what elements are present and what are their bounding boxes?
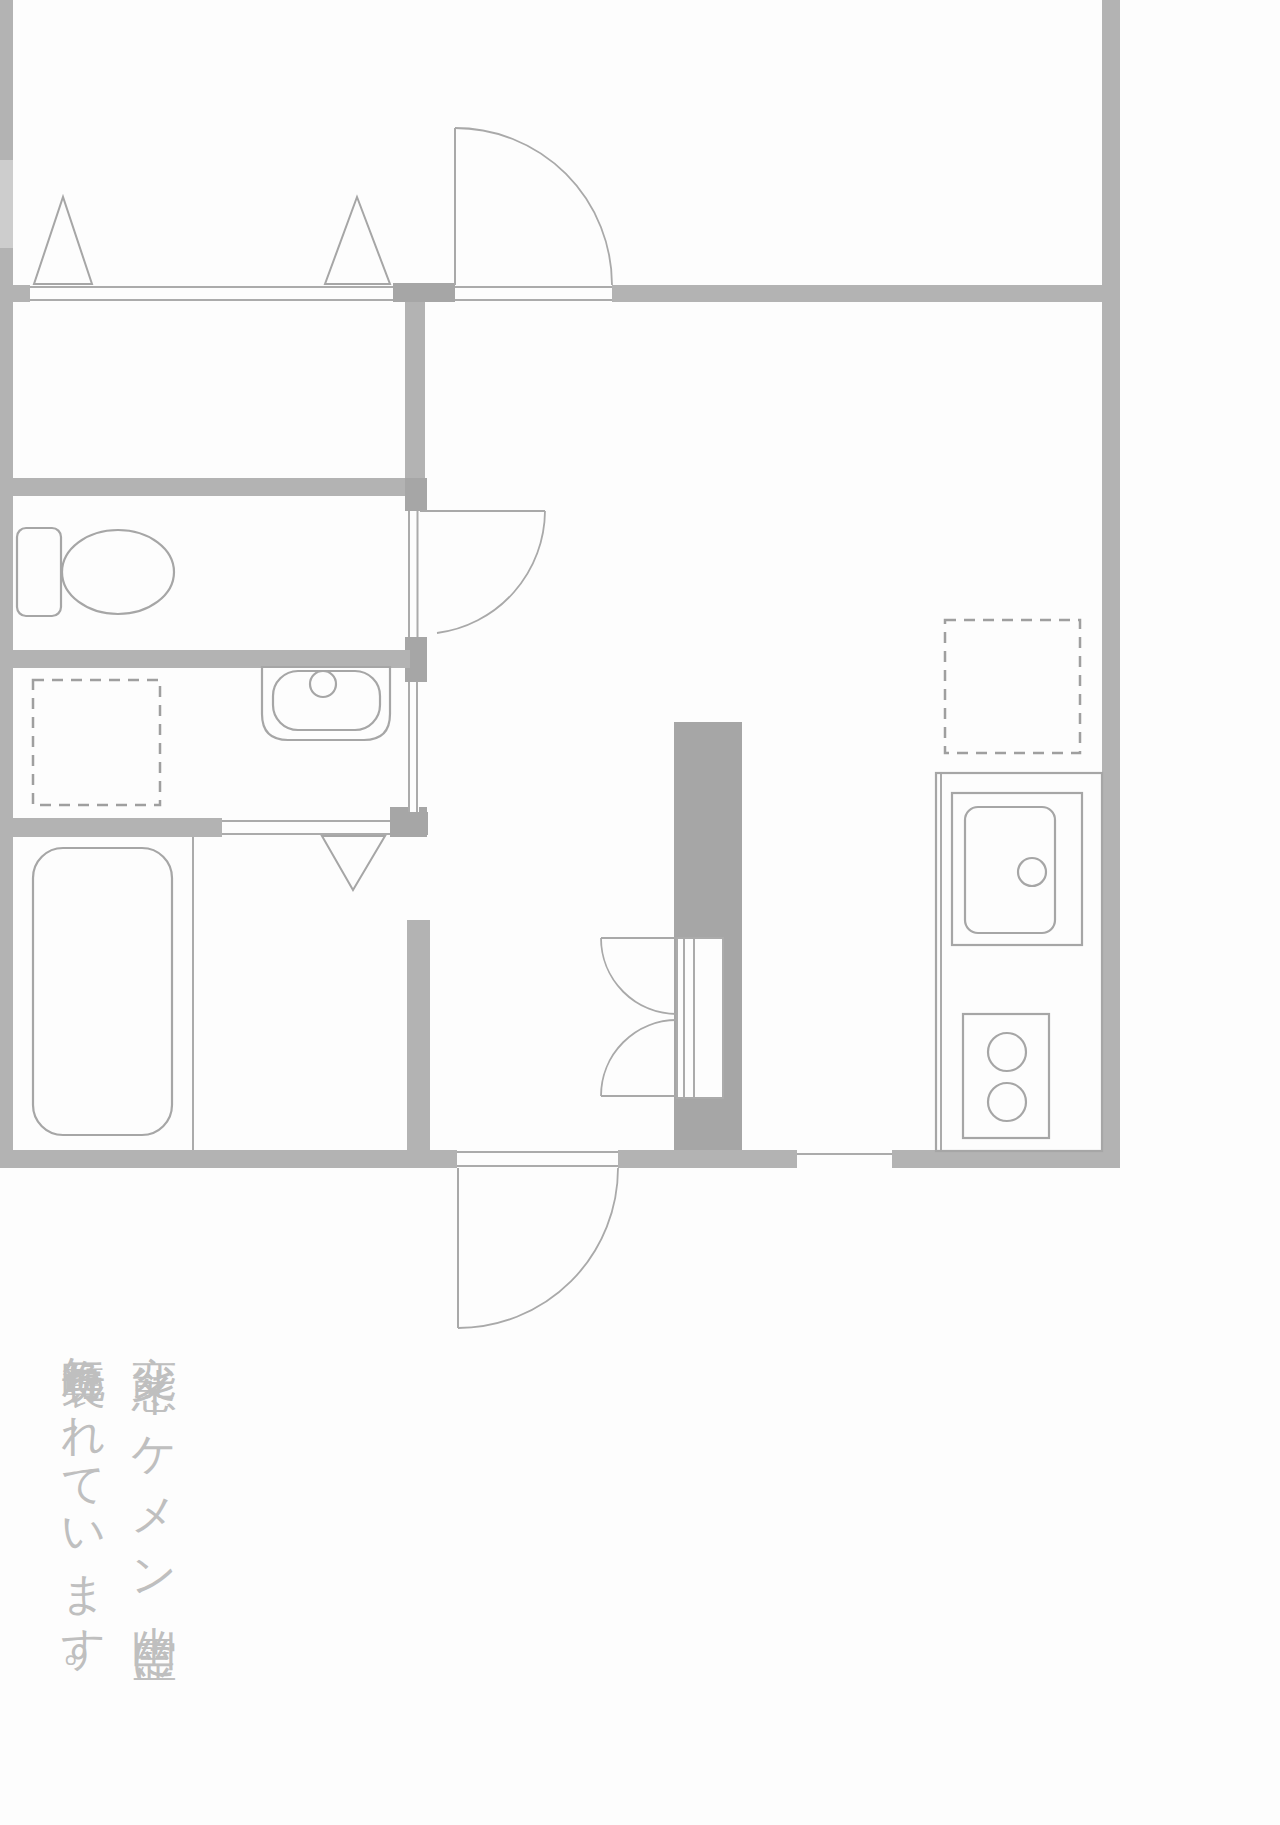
left-wall-upper bbox=[0, 0, 13, 160]
entrance-door-swing-arc bbox=[458, 1168, 618, 1328]
right-wall bbox=[1102, 0, 1120, 1168]
bathtub bbox=[33, 848, 172, 1135]
bath-door-marker bbox=[322, 836, 385, 890]
stove-burner-1 bbox=[988, 1033, 1026, 1071]
refrigerator-space bbox=[945, 620, 1080, 753]
washer-space bbox=[33, 680, 160, 805]
washbasin-faucet bbox=[310, 671, 336, 697]
top-wall-right bbox=[612, 285, 1102, 302]
bath-top-wall bbox=[0, 818, 222, 837]
bottom-wall-left bbox=[0, 1150, 457, 1168]
left-wall-lower bbox=[0, 248, 13, 1168]
toilet-top-wall bbox=[0, 478, 427, 496]
top-window-band bbox=[30, 286, 393, 301]
floor-plan-page: 変態イケメン幽霊に 毎晩襲われています。 bbox=[0, 0, 1280, 1825]
bottom-wall-mid bbox=[618, 1150, 797, 1168]
kitchen-pass-opening bbox=[797, 1150, 892, 1168]
hall-left-wall bbox=[407, 920, 430, 1150]
kitchen-faucet bbox=[1018, 858, 1046, 886]
toilet-bowl bbox=[62, 530, 174, 614]
toilet-bottom-wall bbox=[0, 650, 410, 668]
top-wall-left-stub bbox=[0, 285, 30, 302]
bedroom-door-swing-arc bbox=[455, 128, 612, 285]
toilet-door-swing-arc bbox=[437, 511, 545, 633]
left-wall-window bbox=[0, 160, 13, 248]
window-marker-left bbox=[34, 197, 92, 284]
window-marker-right bbox=[325, 197, 390, 284]
toilet-door-top-block bbox=[405, 478, 427, 511]
bath-folding-door-band bbox=[222, 820, 390, 835]
kitchen-sink-surround bbox=[952, 793, 1082, 945]
kitchen-counter bbox=[936, 773, 1102, 1151]
top-door-sill bbox=[455, 286, 612, 301]
closet-right-wall bbox=[405, 302, 425, 479]
floor-plan-drawing bbox=[0, 0, 1280, 1825]
bottom-wall-right bbox=[892, 1150, 1120, 1168]
stove-burner-2 bbox=[988, 1083, 1026, 1121]
toilet-tank bbox=[17, 528, 61, 616]
caption-line-2: 毎晩襲われています。 bbox=[61, 1322, 105, 1697]
double-door-top-leaf-swing-arc bbox=[601, 938, 677, 1014]
top-wall-mid-block bbox=[393, 283, 455, 302]
caption-line-1: 変態イケメン幽霊に bbox=[131, 1320, 176, 1675]
double-door-bottom-leaf-swing-arc bbox=[601, 1020, 677, 1096]
